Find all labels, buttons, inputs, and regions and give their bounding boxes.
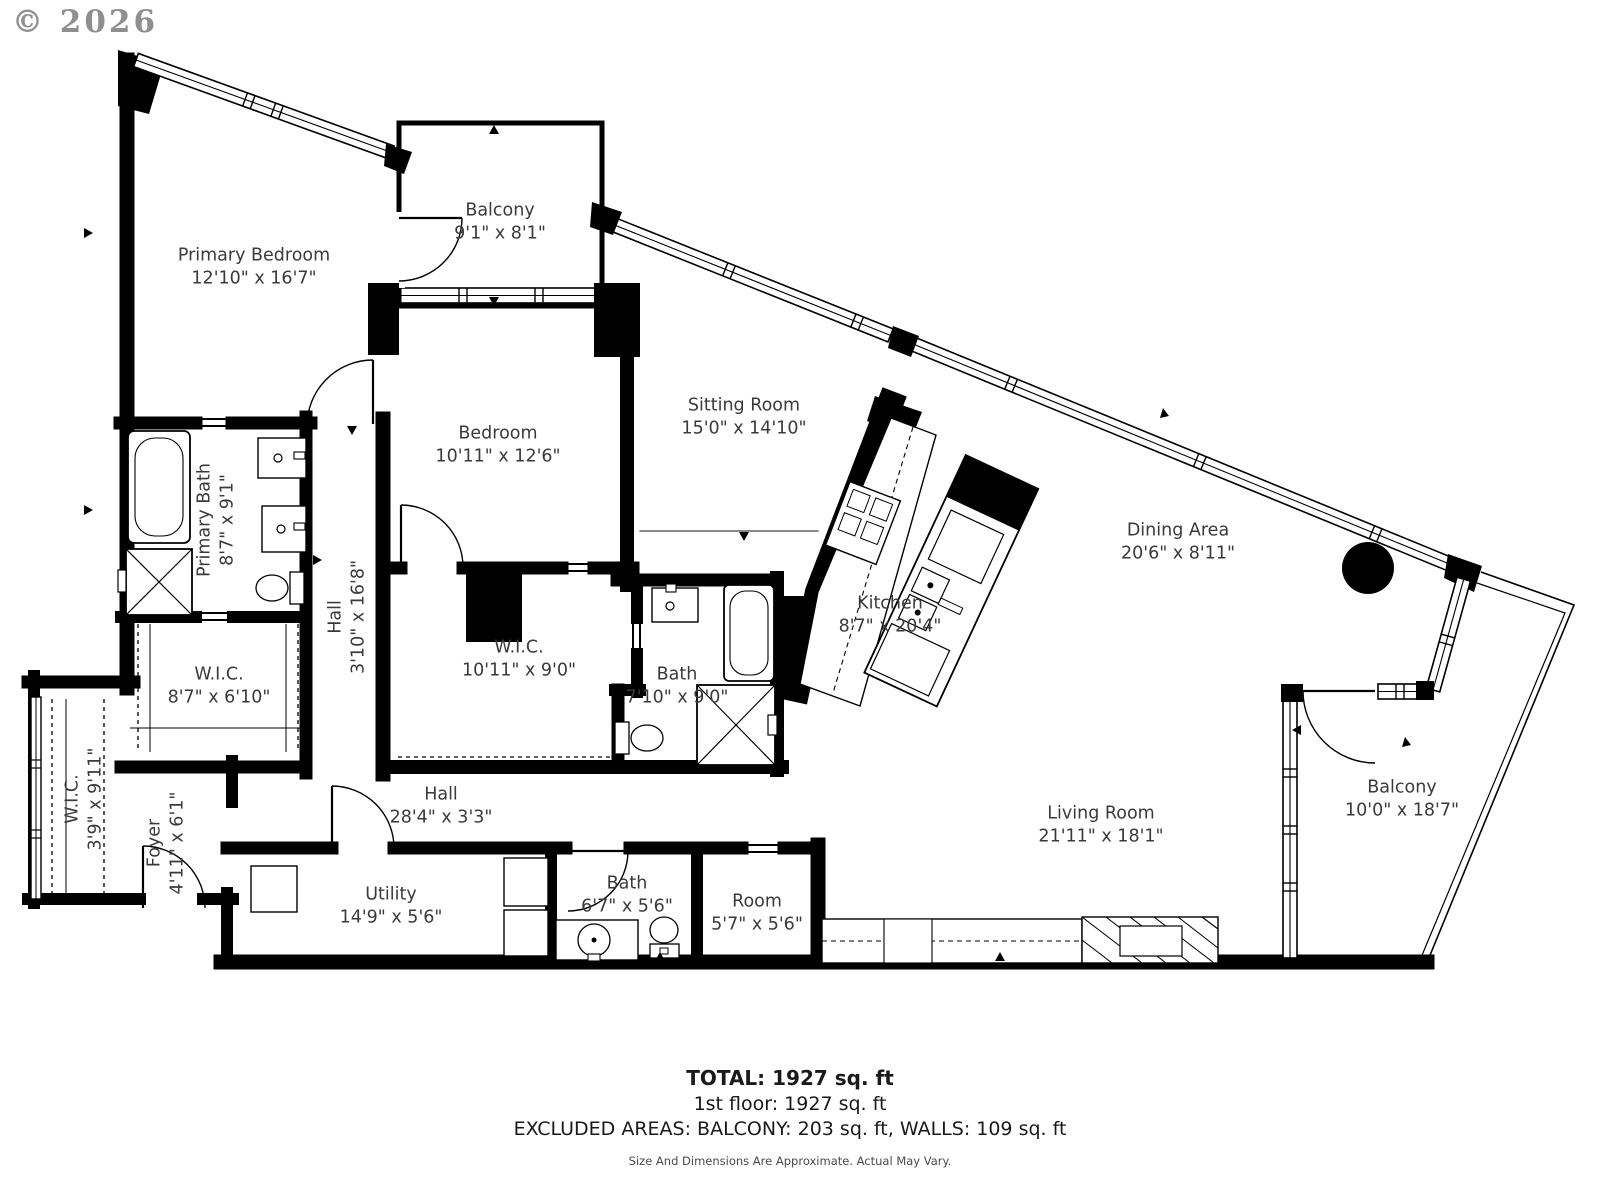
window-diagonal-1	[134, 53, 395, 159]
total-area: TOTAL: 1927 sq. ft	[0, 1066, 1580, 1090]
door-balcony-right	[1303, 691, 1375, 763]
utility-appliances	[251, 858, 548, 956]
bathtub-710	[724, 585, 774, 681]
toilet-710	[615, 722, 663, 754]
window-diagonal-2	[609, 218, 893, 342]
shower-710	[697, 685, 777, 765]
sink-primary-1	[258, 438, 306, 478]
interior-walls	[120, 355, 1434, 958]
sink-primary-2	[262, 506, 306, 552]
floor-plan-page: © 2026	[0, 0, 1600, 1200]
exterior-walls	[28, 50, 1427, 962]
window-diagonal-short	[1426, 577, 1470, 692]
door-bath-67	[568, 851, 628, 911]
door-balcony-top	[399, 218, 462, 281]
door-utility	[332, 786, 394, 848]
bathtub-primary	[128, 431, 190, 543]
media-console	[822, 919, 1082, 963]
floor-area: 1st floor: 1927 sq. ft	[0, 1093, 1580, 1115]
window-bands	[31, 53, 1482, 958]
door-primary-bedroom	[307, 360, 373, 426]
wall-block-bedroom-tl	[368, 283, 399, 355]
window-balcony-top	[399, 288, 602, 303]
toilet-primary	[256, 572, 304, 604]
shower-primary	[118, 549, 192, 615]
window-wic-39	[31, 697, 41, 899]
sink-bath-710	[652, 584, 698, 622]
wall-block-bedroom-tr	[594, 283, 640, 357]
disclaimer: Size And Dimensions Are Approximate. Act…	[0, 1154, 1580, 1168]
area-summary: TOTAL: 1927 sq. ft 1st floor: 1927 sq. f…	[0, 1066, 1580, 1168]
toilet-67	[650, 917, 679, 958]
doors	[143, 218, 1375, 911]
window-living-balcony	[1283, 700, 1297, 958]
door-bedroom	[401, 505, 463, 568]
fireplace	[1082, 917, 1218, 963]
excluded-areas: EXCLUDED AREAS: BALCONY: 203 sq. ft, WAL…	[0, 1118, 1580, 1140]
wall-block-closet	[466, 572, 522, 642]
floor-plan-drawing	[0, 0, 1600, 1200]
column	[1342, 542, 1394, 594]
window-balcony-right-top	[1378, 684, 1420, 699]
fixtures	[52, 418, 1394, 963]
sink-bath-67	[556, 920, 638, 961]
door-entry	[143, 846, 205, 908]
